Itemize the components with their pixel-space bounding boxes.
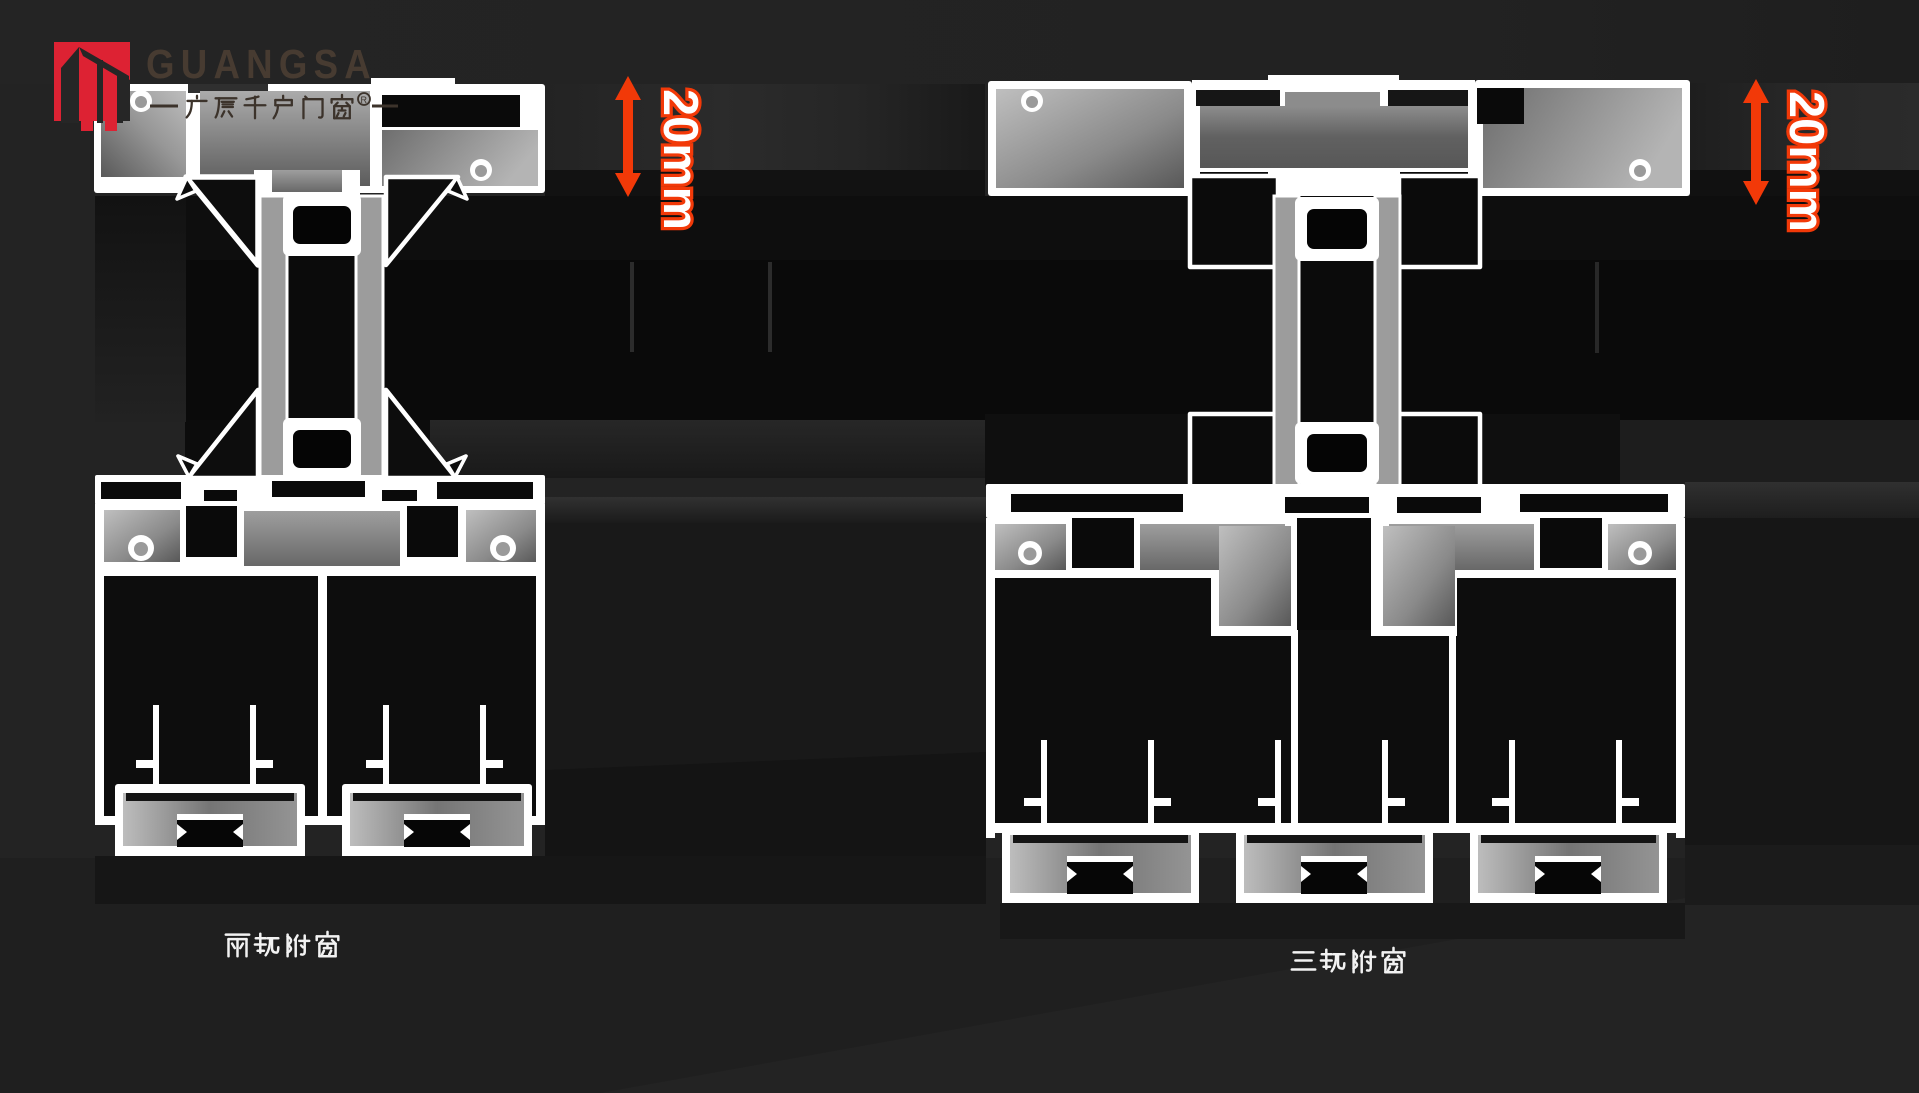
svg-text:GUANGSA: GUANGSA [146,41,377,87]
svg-text:20mm: 20mm [1779,91,1833,232]
svg-text:20mm: 20mm [653,89,707,230]
svg-text:R: R [361,95,368,105]
